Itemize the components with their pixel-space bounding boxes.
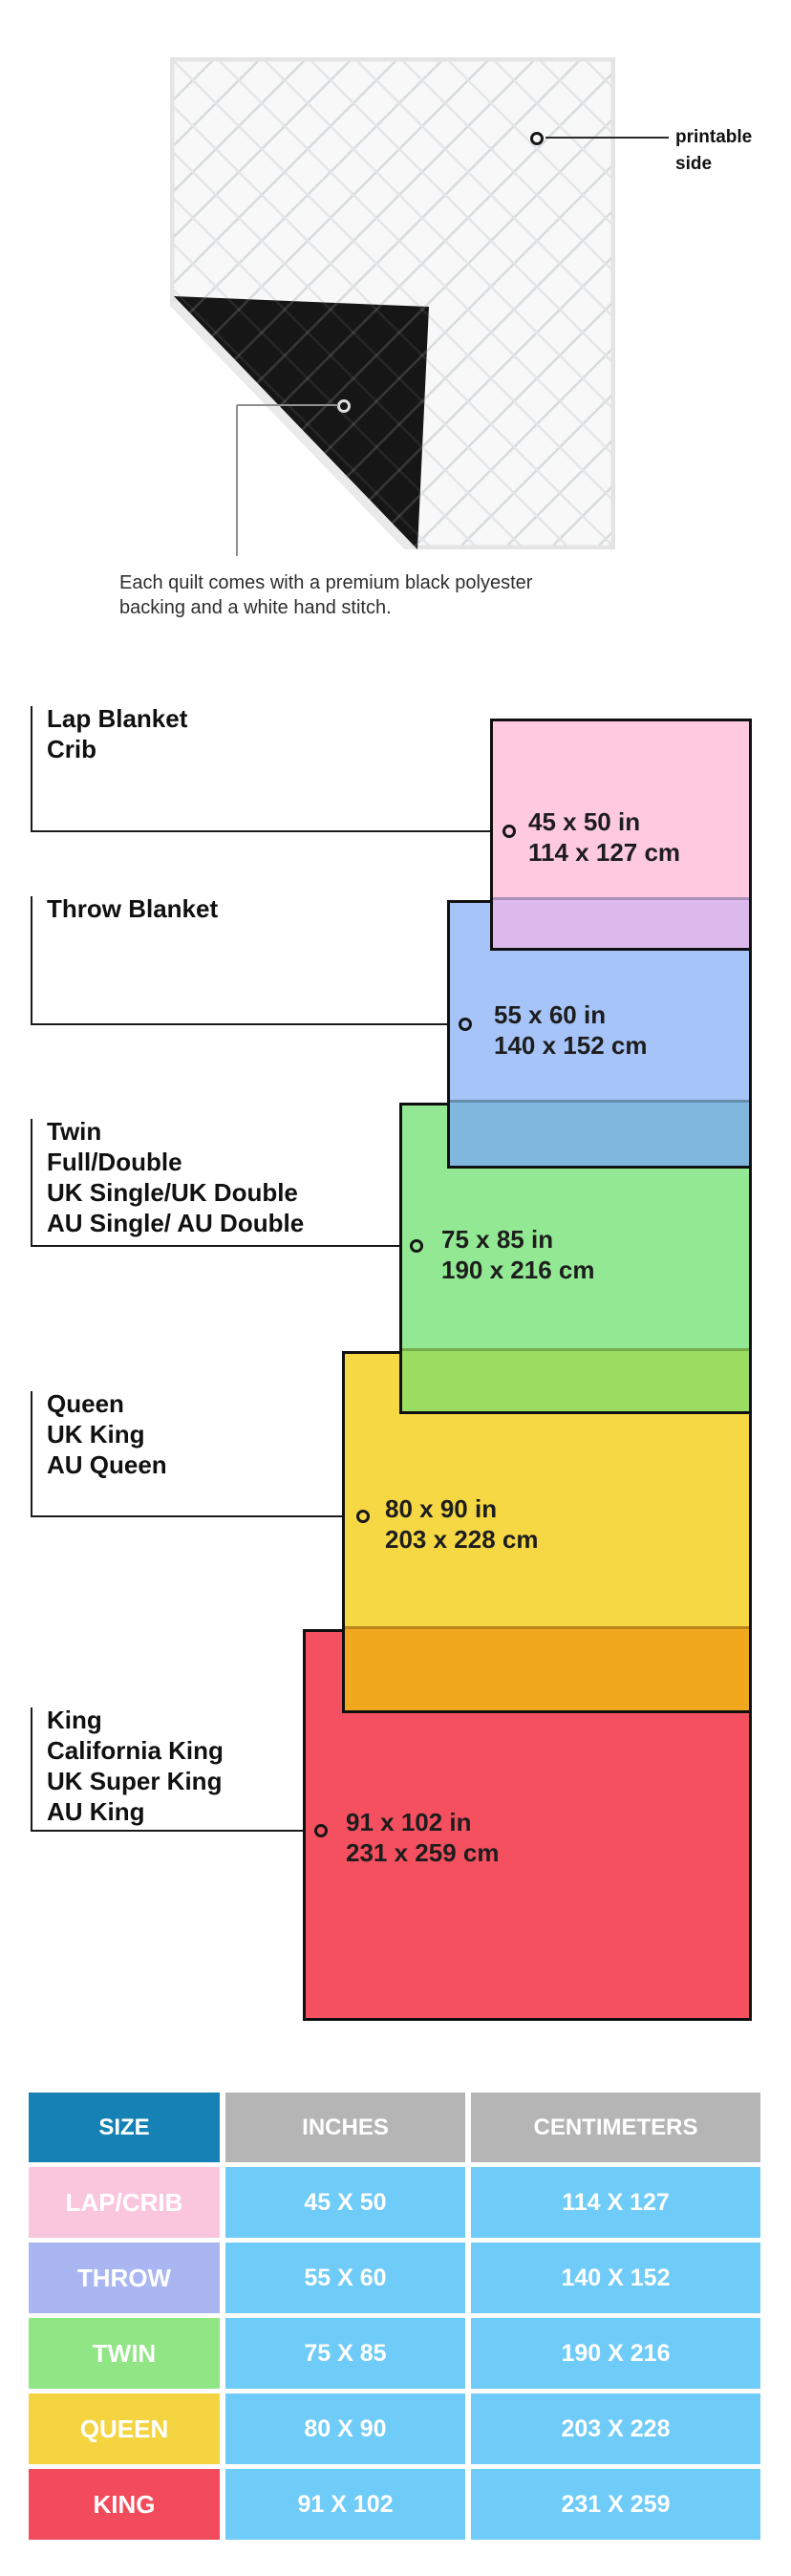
table-row-king-inches: 91 X 102 bbox=[225, 2469, 465, 2540]
size-dimensions-queen: 80 x 90 in 203 x 228 cm bbox=[385, 1493, 538, 1555]
overlap-queen-over-king bbox=[345, 1626, 749, 1710]
connector-throw-vertical bbox=[31, 896, 32, 1025]
label-throw: Throw Blanket bbox=[47, 893, 218, 924]
backing-marker-icon bbox=[337, 399, 351, 413]
connector-lap-vertical bbox=[31, 706, 32, 832]
table-row-twin-cm: 190 X 216 bbox=[471, 2318, 760, 2389]
connector-twin-vertical bbox=[31, 1119, 32, 1247]
table-row-twin-size: TWIN bbox=[29, 2318, 220, 2389]
backing-callout-line-vertical bbox=[236, 405, 238, 556]
table-row-queen-inches: 80 X 90 bbox=[225, 2394, 465, 2464]
connector-twin-horizontal bbox=[31, 1245, 410, 1247]
size-dimensions-throw: 55 x 60 in 140 x 152 cm bbox=[494, 999, 647, 1061]
connector-queen-horizontal bbox=[31, 1515, 356, 1517]
table-row-king-cm: 231 X 259 bbox=[471, 2469, 760, 2540]
table-row-queen-cm: 203 X 228 bbox=[471, 2394, 760, 2464]
connector-king-horizontal bbox=[31, 1830, 314, 1832]
table-row-throw-size: THROW bbox=[29, 2243, 220, 2313]
printable-side-marker-icon bbox=[530, 132, 544, 145]
table-header-centimeters: CENTIMETERS bbox=[471, 2093, 760, 2162]
printable-side-callout-line bbox=[545, 137, 669, 139]
connector-lap-horizontal bbox=[31, 830, 502, 832]
size-dimensions-lap-crib: 45 x 50 in 114 x 127 cm bbox=[528, 806, 680, 868]
table-row-twin-inches: 75 X 85 bbox=[225, 2318, 465, 2389]
diagram-marker-twin-icon bbox=[410, 1239, 423, 1253]
quilt-caption: Each quilt comes with a premium black po… bbox=[119, 570, 597, 620]
table-row-queen-size: QUEEN bbox=[29, 2394, 220, 2464]
connector-queen-vertical bbox=[31, 1391, 32, 1517]
backing-callout-line-horizontal bbox=[237, 404, 338, 406]
label-lap-crib: Lap Blanket Crib bbox=[47, 703, 187, 764]
label-queen: Queen UK King AU Queen bbox=[47, 1388, 167, 1480]
table-header-size: SIZE bbox=[29, 2093, 220, 2162]
label-twin: Twin Full/Double UK Single/UK Double AU … bbox=[47, 1116, 304, 1238]
diagram-rect-lap-crib: 45 x 50 in 114 x 127 cm bbox=[490, 719, 752, 951]
size-table: SIZE INCHES CENTIMETERS LAP/CRIB 45 X 50… bbox=[29, 2093, 760, 2540]
diagram-marker-king-icon bbox=[314, 1824, 328, 1837]
diagram-marker-lap-icon bbox=[502, 825, 516, 838]
table-row-king-size: KING bbox=[29, 2469, 220, 2540]
diagram-marker-queen-icon bbox=[356, 1510, 370, 1523]
table-row-lap-inches: 45 X 50 bbox=[225, 2167, 465, 2238]
overlap-throw-over-twin bbox=[450, 1100, 749, 1166]
table-row-lap-size: LAP/CRIB bbox=[29, 2167, 220, 2238]
diagram-marker-throw-icon bbox=[459, 1018, 472, 1031]
table-row-throw-inches: 55 X 60 bbox=[225, 2243, 465, 2313]
quilt-size-chart-page: { "quilt": { "printable_side_label": "pr… bbox=[0, 0, 791, 2576]
connector-king-vertical bbox=[31, 1707, 32, 1832]
printable-side-label: printable side bbox=[675, 124, 786, 178]
table-row-throw-cm: 140 X 152 bbox=[471, 2243, 760, 2313]
label-king: King California King UK Super King AU Ki… bbox=[47, 1705, 224, 1827]
table-header-inches: INCHES bbox=[225, 2093, 465, 2162]
table-row-lap-cm: 114 X 127 bbox=[471, 2167, 760, 2238]
connector-throw-horizontal bbox=[31, 1023, 459, 1025]
size-dimensions-twin: 75 x 85 in 190 x 216 cm bbox=[441, 1224, 594, 1285]
overlap-twin-over-queen bbox=[402, 1348, 749, 1411]
size-dimensions-king: 91 x 102 in 231 x 259 cm bbox=[346, 1807, 499, 1868]
overlap-lap-over-throw bbox=[493, 897, 749, 948]
